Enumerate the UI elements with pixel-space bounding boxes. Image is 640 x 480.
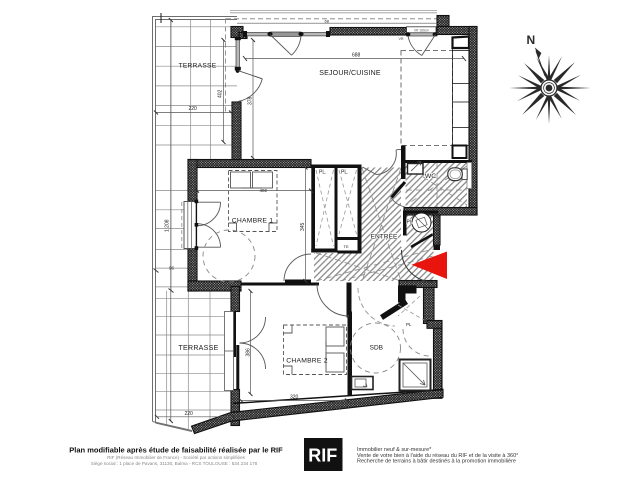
svg-text:TERRASSE: TERRASSE [178, 345, 218, 352]
svg-text:688: 688 [352, 53, 361, 59]
svg-text:PL.: PL. [341, 170, 349, 176]
svg-text:378: 378 [248, 96, 254, 105]
svg-text:TE: TE [344, 244, 349, 249]
svg-text:N: N [527, 33, 536, 47]
svg-text:SDB: SDB [370, 345, 383, 352]
svg-text:96: 96 [169, 266, 175, 271]
svg-text:220: 220 [185, 411, 194, 417]
svg-text:RIF (Réseau Immobilier de Fran: RIF (Réseau Immobilier de France) - Soci… [107, 455, 246, 460]
svg-text:386: 386 [246, 348, 252, 357]
svg-text:VR: VR [399, 37, 404, 41]
svg-text:RIF: RIF [308, 446, 337, 466]
svg-text:PL.: PL. [319, 170, 327, 176]
svg-text:PL: PL [407, 220, 413, 226]
svg-text:Recherche de terrains à bâtir: Recherche de terrains à bâtir destinés à… [357, 459, 516, 465]
svg-text:345: 345 [300, 222, 306, 231]
svg-text:PL: PL [406, 322, 412, 327]
svg-text:220: 220 [189, 106, 198, 112]
svg-text:CHAMBRE 1: CHAMBRE 1 [232, 218, 273, 225]
svg-text:ENTRÉE: ENTRÉE [371, 232, 398, 241]
svg-text:SEJOUR/CUISINE: SEJOUR/CUISINE [319, 70, 381, 77]
svg-text:Siège social : 1 place de Pava: Siège social : 1 place de Pavans, 31130,… [91, 461, 258, 466]
svg-text:402: 402 [218, 89, 224, 98]
svg-text:320: 320 [290, 395, 299, 401]
svg-text:Plan modifiable après étude de: Plan modifiable après étude de faisabili… [69, 445, 283, 454]
svg-text:1 208: 1 208 [165, 219, 171, 232]
svg-text:TERRASSE: TERRASSE [179, 63, 217, 70]
svg-text:WC: WC [425, 173, 436, 180]
svg-text:CHAMBRE 2: CHAMBRE 2 [286, 358, 327, 365]
svg-text:VR 180cm: VR 180cm [414, 29, 429, 33]
svg-text:68: 68 [325, 19, 330, 24]
svg-text:402: 402 [260, 188, 268, 193]
